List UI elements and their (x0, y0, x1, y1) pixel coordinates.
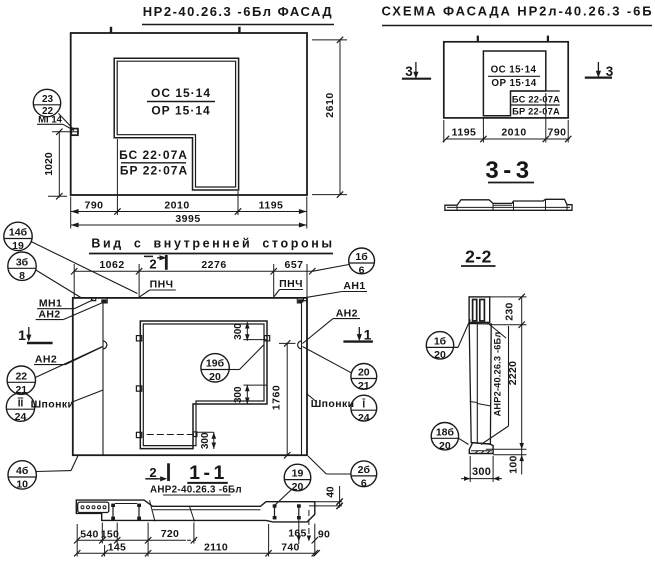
svg-text:1195: 1195 (452, 127, 477, 139)
svg-text:БР 22·07А: БР 22·07А (120, 164, 188, 178)
svg-text:БР 22-07А: БР 22-07А (512, 107, 560, 117)
svg-text:14б: 14б (9, 227, 28, 239)
svg-text:90: 90 (318, 529, 330, 541)
svg-text:НР2-40.26.3 -6Бл ФАСАД: НР2-40.26.3 -6Бл ФАСАД (143, 4, 333, 19)
svg-text:21: 21 (358, 380, 370, 392)
svg-text:2: 2 (149, 465, 156, 480)
svg-text:6: 6 (361, 478, 367, 490)
svg-text:АН2: АН2 (38, 308, 60, 320)
svg-text:22: 22 (15, 371, 27, 383)
svg-text:1062: 1062 (99, 259, 124, 271)
svg-text:720: 720 (161, 528, 179, 540)
svg-text:230: 230 (504, 302, 516, 320)
svg-text:II: II (18, 399, 24, 410)
svg-text:I: I (362, 400, 365, 411)
svg-text:20: 20 (439, 440, 451, 452)
svg-text:2-2: 2-2 (465, 247, 492, 267)
svg-text:6: 6 (359, 265, 365, 277)
svg-text:300: 300 (200, 432, 211, 449)
svg-text:10: 10 (16, 479, 28, 491)
svg-text:АН2: АН2 (35, 353, 57, 365)
svg-text:3-3: 3-3 (485, 157, 533, 184)
svg-text:1: 1 (364, 327, 372, 343)
svg-text:Вид с внутренней стороны: Вид с внутренней стороны (91, 237, 334, 251)
svg-text:3б: 3б (16, 257, 29, 269)
svg-text:790: 790 (547, 127, 566, 139)
svg-text:ОС 15·14: ОС 15·14 (491, 65, 537, 76)
svg-text:1195: 1195 (259, 200, 284, 212)
svg-text:ПНЧ: ПНЧ (279, 278, 303, 290)
svg-text:АН1: АН1 (343, 280, 365, 292)
svg-text:100: 100 (508, 455, 520, 473)
svg-text:145: 145 (108, 542, 126, 554)
svg-text:1б: 1б (434, 336, 447, 348)
svg-text:СХЕМА ФАСАДА НР2л-40.26.3 -6Б: СХЕМА ФАСАДА НР2л-40.26.3 -6Б (382, 4, 654, 19)
svg-text:АН2: АН2 (336, 307, 358, 319)
svg-text:19: 19 (292, 468, 304, 480)
svg-text:300: 300 (233, 386, 244, 403)
svg-text:ОР 15·14: ОР 15·14 (491, 78, 536, 89)
svg-text:Шпонки: Шпонки (311, 398, 355, 410)
svg-text:ОР 15·14: ОР 15·14 (151, 104, 210, 118)
svg-text:ОС 15·14: ОС 15·14 (151, 86, 211, 100)
svg-text:2: 2 (149, 257, 156, 272)
svg-text:БС 22-07А: БС 22-07А (512, 95, 560, 105)
svg-text:20: 20 (292, 481, 304, 493)
svg-text:40: 40 (326, 486, 337, 498)
svg-text:3995: 3995 (175, 213, 200, 225)
svg-text:20: 20 (209, 371, 221, 383)
svg-text:18б: 18б (436, 427, 455, 439)
svg-text:3: 3 (405, 64, 413, 79)
svg-text:АНР2-40.26.3 -6Бл: АНР2-40.26.3 -6Бл (493, 332, 503, 417)
svg-text:2б: 2б (358, 464, 371, 476)
svg-text:БС 22·07А: БС 22·07А (119, 148, 188, 162)
svg-text:150: 150 (101, 529, 119, 541)
svg-text:790: 790 (84, 200, 103, 212)
svg-text:8: 8 (19, 270, 25, 282)
svg-text:ПНЧ: ПНЧ (150, 279, 174, 291)
svg-text:1760: 1760 (271, 385, 283, 410)
svg-text:20: 20 (434, 349, 446, 361)
svg-text:1б: 1б (355, 251, 368, 263)
svg-text:23: 23 (42, 94, 54, 105)
svg-text:300: 300 (472, 466, 491, 478)
svg-text:2610: 2610 (324, 92, 336, 117)
svg-text:300: 300 (233, 323, 244, 340)
svg-text:2010: 2010 (501, 127, 526, 139)
svg-text:19б: 19б (206, 358, 225, 370)
svg-text:2110: 2110 (204, 542, 228, 554)
svg-text:Шпонки: Шпонки (31, 399, 75, 411)
svg-text:1: 1 (18, 327, 26, 343)
svg-text:2010: 2010 (164, 200, 189, 212)
svg-text:657: 657 (284, 259, 303, 271)
svg-text:2220: 2220 (507, 361, 519, 386)
svg-text:АНР2-40.26.3 -6Бл: АНР2-40.26.3 -6Бл (150, 485, 242, 496)
svg-text:740: 740 (281, 542, 299, 554)
svg-text:165: 165 (288, 528, 306, 540)
svg-text:1-1: 1-1 (189, 462, 228, 484)
svg-text:24: 24 (358, 412, 370, 424)
svg-text:1020: 1020 (43, 152, 55, 176)
svg-text:4б: 4б (16, 465, 29, 477)
svg-text:19: 19 (12, 240, 24, 252)
svg-text:2276: 2276 (201, 259, 226, 271)
svg-text:24: 24 (15, 411, 27, 423)
svg-text:540: 540 (80, 529, 98, 541)
svg-text:20: 20 (358, 367, 370, 379)
